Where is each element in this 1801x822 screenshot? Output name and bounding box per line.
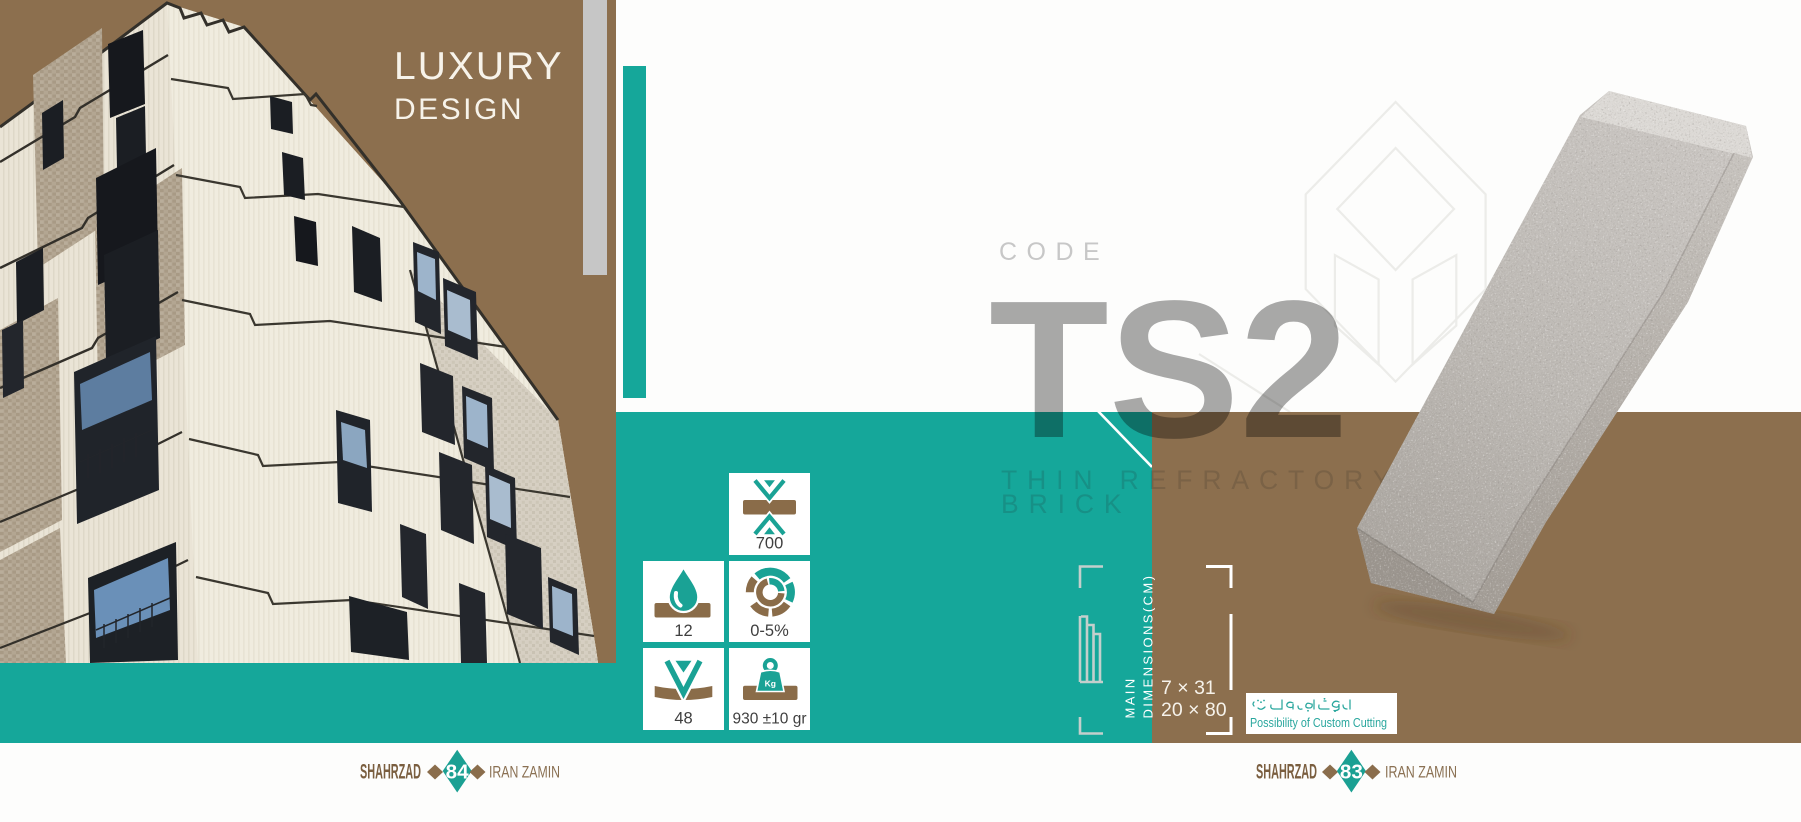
- svg-text:SHAHRZAD: SHAHRZAD: [1256, 761, 1317, 784]
- svg-text:SHAHRZAD: SHAHRZAD: [360, 761, 421, 784]
- svg-text:IRAN ZAMIN: IRAN ZAMIN: [489, 764, 560, 782]
- svg-text:83: 83: [1340, 762, 1363, 784]
- svg-text:IRAN ZAMIN: IRAN ZAMIN: [1385, 764, 1457, 782]
- svg-text:84: 84: [446, 762, 470, 784]
